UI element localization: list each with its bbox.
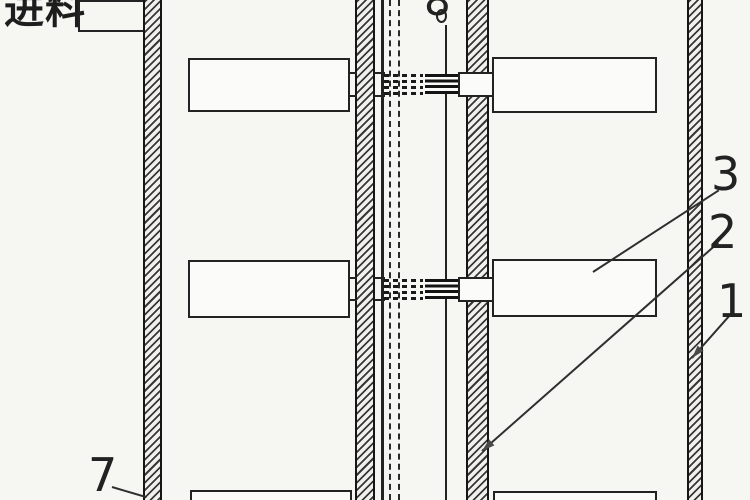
stub-row2-left-bottom <box>349 299 357 301</box>
rod-row1-dashed-section <box>384 73 423 96</box>
outer-wall-left <box>143 0 162 500</box>
stub-row1-left-top <box>349 72 357 74</box>
chamber-box-left-2 <box>188 260 350 318</box>
agitator-rod-line <box>445 25 447 500</box>
inner-wall-left <box>355 0 375 500</box>
outer-wall-right <box>687 0 703 500</box>
stub-row1-left-bottom <box>349 95 357 97</box>
chamber-box-right-3 <box>493 491 657 500</box>
rod-row2-coupler <box>458 277 494 302</box>
rod-row1-threaded-section <box>425 74 458 94</box>
ref-label-7: 7 <box>88 452 117 498</box>
feed-inlet-duct <box>78 0 143 32</box>
rod-row1-coupler <box>458 72 494 97</box>
chamber-box-left-1 <box>188 58 350 112</box>
rod-row2-threaded-section <box>425 279 458 299</box>
feed-inlet-label: 进料 <box>4 0 86 32</box>
chamber-box-right-2 <box>492 259 657 317</box>
ref-label-8: 8 <box>424 0 451 22</box>
stub-row2-left-top <box>349 277 357 279</box>
ref-label-1: 1 <box>717 278 746 324</box>
patent-figure-canvas: 进料 8 3 2 <box>0 0 750 500</box>
ref-label-2: 2 <box>708 209 737 255</box>
ref-label-3: 3 <box>711 151 740 197</box>
chamber-box-right-1 <box>492 57 657 113</box>
rod-row2-dashed-section <box>384 278 423 301</box>
chamber-box-left-3 <box>190 490 352 500</box>
